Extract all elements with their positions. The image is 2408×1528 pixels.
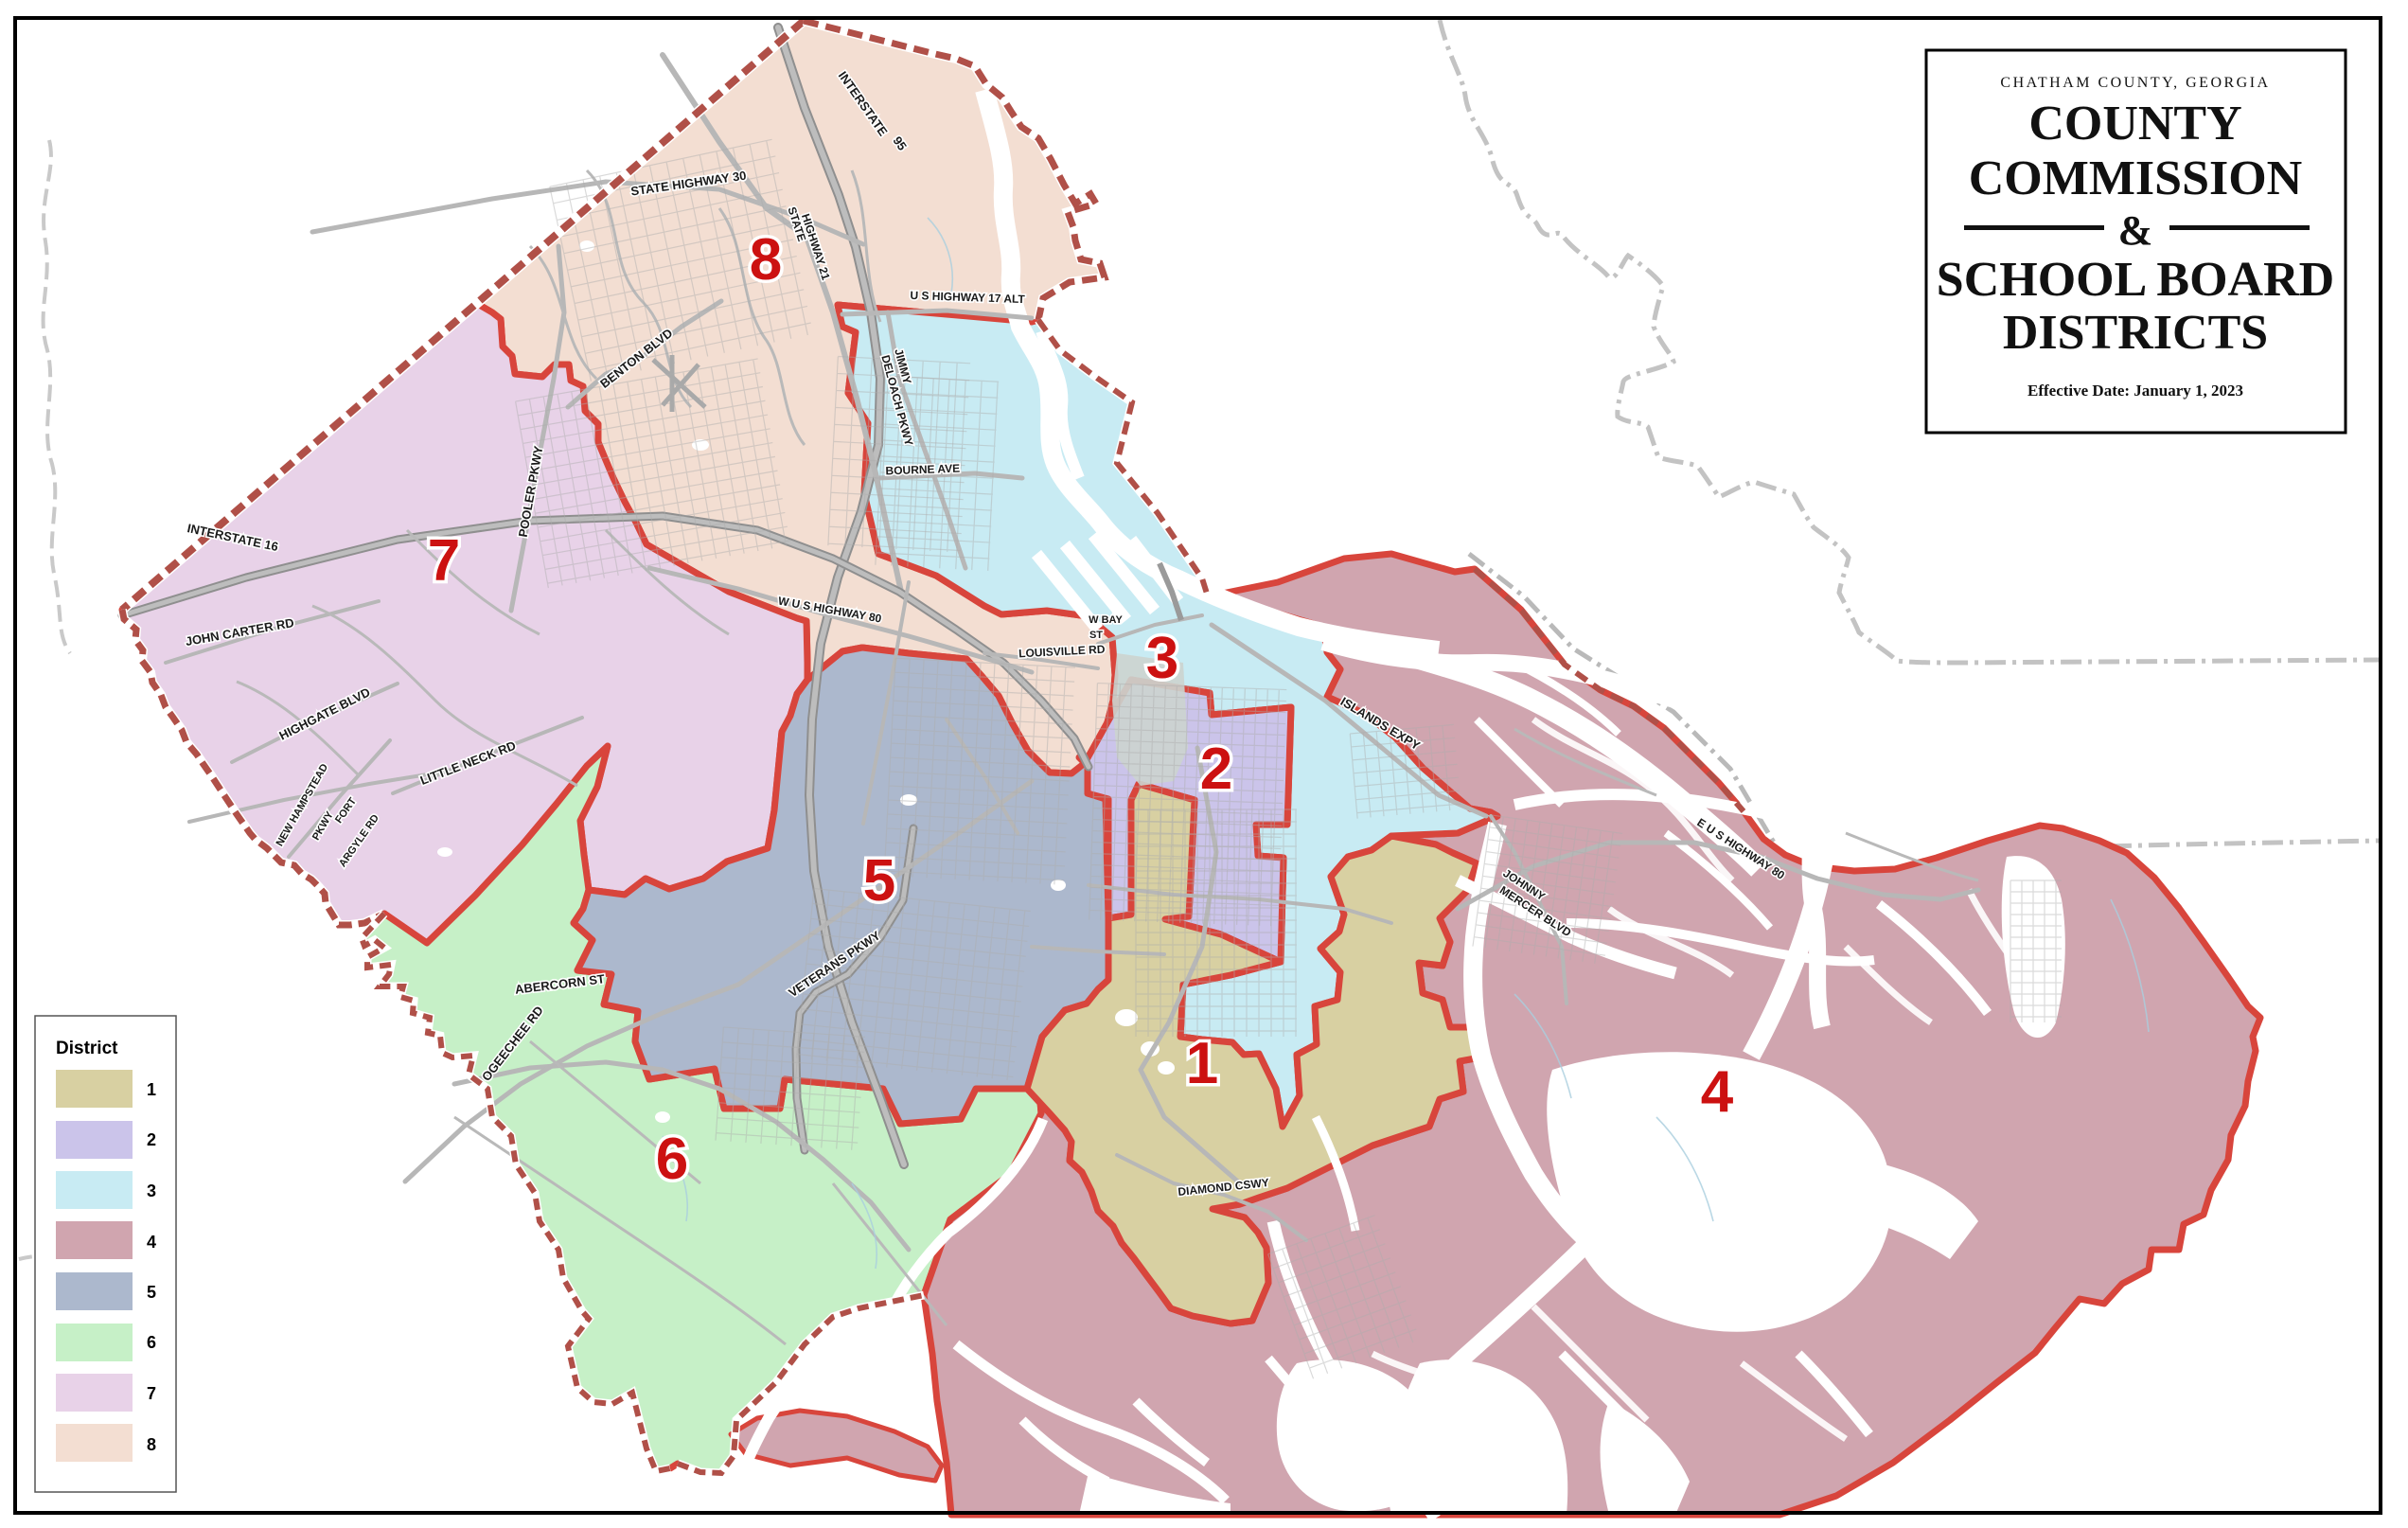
svg-text:8: 8 [750, 227, 782, 293]
svg-text:3: 3 [147, 1182, 156, 1200]
svg-text:1: 1 [147, 1080, 156, 1099]
svg-text:2: 2 [147, 1130, 156, 1149]
svg-text:SCHOOL BOARD: SCHOOL BOARD [1937, 253, 2334, 307]
svg-text:4: 4 [1701, 1059, 1734, 1125]
svg-text:BOURNE AVE: BOURNE AVE [885, 462, 960, 478]
svg-text:5: 5 [147, 1283, 156, 1302]
svg-text:7: 7 [428, 528, 460, 594]
svg-text:7: 7 [147, 1384, 156, 1403]
svg-text:3: 3 [1146, 626, 1178, 691]
svg-text:2: 2 [1200, 737, 1232, 802]
svg-text:6: 6 [147, 1333, 156, 1352]
svg-text:W BAY: W BAY [1089, 614, 1123, 626]
svg-text:ST: ST [1089, 630, 1103, 641]
svg-text:CHATHAM COUNTY, GEORGIA: CHATHAM COUNTY, GEORGIA [2000, 75, 2270, 91]
svg-text:Effective Date: January 1, 202: Effective Date: January 1, 2023 [2027, 382, 2243, 400]
svg-text:1: 1 [1186, 1031, 1218, 1096]
svg-text:COUNTY: COUNTY [2028, 97, 2241, 151]
svg-text:6: 6 [656, 1127, 688, 1192]
svg-text:&: & [2118, 207, 2153, 254]
svg-text:8: 8 [147, 1435, 156, 1454]
svg-text:COMMISSION: COMMISSION [1969, 151, 2302, 205]
svg-text:4: 4 [147, 1233, 156, 1252]
svg-text:DISTRICTS: DISTRICTS [2003, 306, 2268, 360]
svg-text:District: District [56, 1039, 118, 1058]
svg-text:5: 5 [863, 848, 895, 914]
